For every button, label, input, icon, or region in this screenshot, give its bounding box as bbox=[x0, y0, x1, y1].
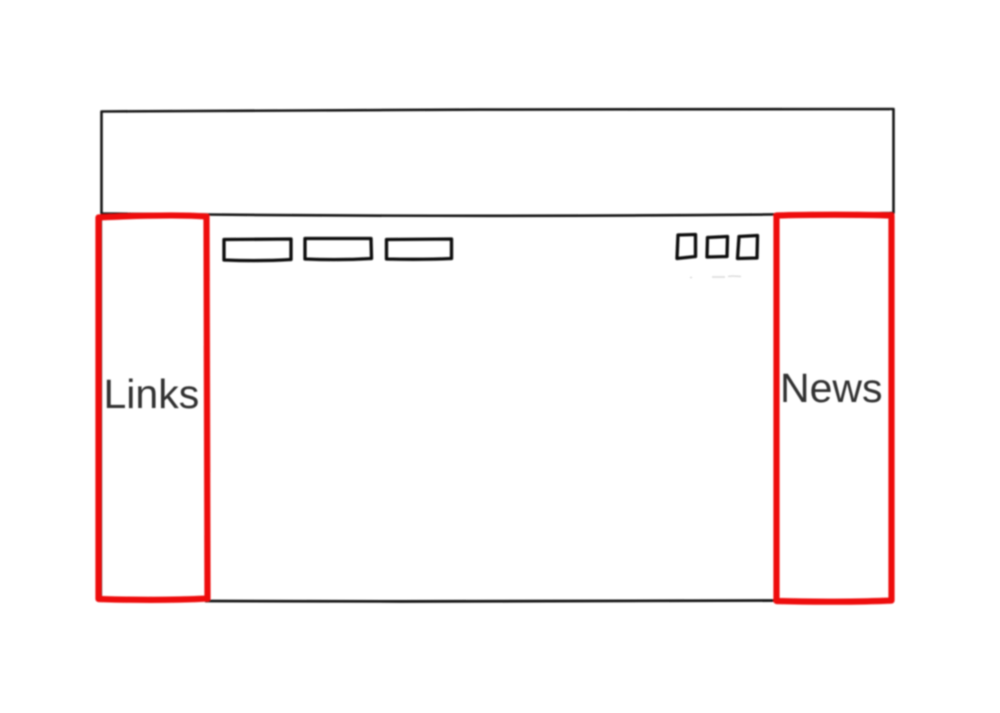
svg-text:News: News bbox=[780, 365, 883, 411]
svg-text:Links: Links bbox=[104, 371, 200, 417]
